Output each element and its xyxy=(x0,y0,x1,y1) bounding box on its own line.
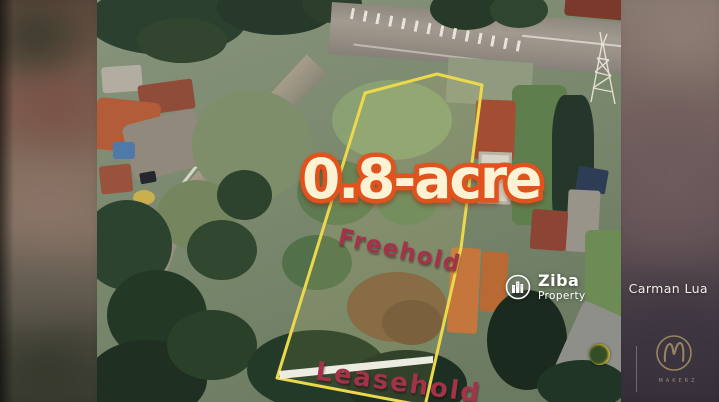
city-buildings-icon xyxy=(505,274,531,300)
area-label: 0.8-acre 0.8-acre xyxy=(302,144,502,216)
info-side-panel: Carman Lua MAKERZ xyxy=(621,0,719,402)
blurred-edge-left-texture xyxy=(0,0,97,402)
producer-caption: MAKERZ xyxy=(639,378,717,384)
satellite-map: 0.8-acre 0.8-acre Freehold Leasehold Zib… xyxy=(97,0,621,402)
ziba-property-watermark: Ziba Property xyxy=(505,273,586,302)
logo-divider xyxy=(636,346,637,392)
brand-name: Ziba xyxy=(538,273,586,289)
blurred-edge-left xyxy=(0,0,97,402)
left-dark-rim xyxy=(0,0,14,402)
video-frame: 0.8-acre 0.8-acre Freehold Leasehold Zib… xyxy=(0,0,719,402)
area-label-fill: 0.8-acre xyxy=(302,144,540,214)
producer-monogram-icon xyxy=(650,330,698,378)
agent-name-label: Carman Lua xyxy=(629,281,708,296)
secondary-circle-logo-icon xyxy=(589,344,610,365)
brand-subtitle: Property xyxy=(538,291,586,302)
